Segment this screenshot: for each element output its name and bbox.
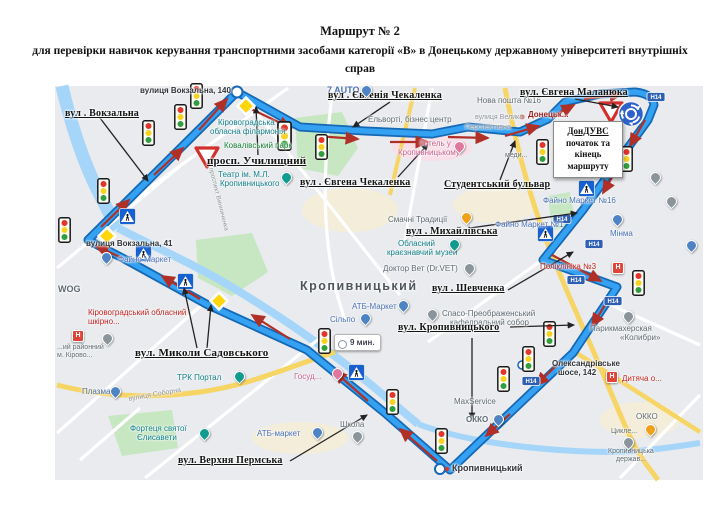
- annotation-kropyvnytskoho: вул. Кропивницького: [398, 322, 499, 333]
- poi-label-silpo: Сільпо: [330, 315, 355, 324]
- poi-label-raionnyi: ...ий районний: [57, 344, 104, 351]
- poi-label-okko-right: ОККО: [636, 412, 658, 421]
- route-box-line: кінець: [556, 149, 620, 161]
- city-label: Кропивницький: [300, 279, 418, 293]
- poi-label-sobor: Спасо-Преображенський: [442, 309, 535, 318]
- poi-label-shkola: Школа: [340, 420, 364, 429]
- road-badge: Н14: [607, 299, 619, 305]
- poi-label-teatr-2: Кропивницького: [220, 179, 279, 188]
- poi-label-faino-16: Файно Маркет №16: [543, 196, 616, 205]
- hospital-icon: H: [612, 262, 624, 274]
- poi-label-trk-portal: ТРК Портал: [177, 373, 221, 382]
- traffic-light-icon: [175, 105, 186, 129]
- poi-label-wog: WOG: [58, 284, 81, 294]
- travel-time-bubble: 9 мин.: [334, 334, 381, 351]
- poi-label-smachni: Смачні Традиції: [388, 215, 447, 224]
- poi-label-plazma: Плазма: [82, 387, 110, 396]
- traffic-light-icon: [537, 140, 548, 164]
- traffic-light-icon: [98, 179, 109, 203]
- poi-label-minma: Мінма: [610, 229, 633, 238]
- poi-label-okko-left: ОККО: [466, 415, 488, 424]
- poi-label-shkirno: Кіровоградський обласний: [88, 308, 186, 317]
- poi-label-shkirno-2: шкірно...: [88, 317, 120, 326]
- poi-label-krop-bottom: Кропивницький: [452, 463, 523, 473]
- annotation-chekalenka-mid: вул . Євгена Чекаленка: [300, 177, 411, 188]
- poi-label-faino-left: Файно Маркет: [118, 255, 171, 264]
- pedestrian-crossing-icon: [120, 209, 136, 225]
- poi-label-muzei: Обласний: [398, 239, 435, 248]
- poi-label-vokzalna-140: вулиця Вокзальна, 140: [140, 86, 231, 95]
- hospital-icon: H: [72, 330, 84, 342]
- clock-icon: [338, 340, 347, 349]
- poi-label-gosud: Госуд...: [294, 372, 321, 381]
- poi-label-hotel: Готель у: [420, 139, 451, 148]
- route-endpoints-box: ДонДУВС початок та кінець маршруту: [553, 121, 623, 178]
- pedestrian-crossing-icon: [178, 274, 194, 290]
- poi-label-muzei-2: краєзнавчий музей: [387, 248, 457, 257]
- hospital-icon: H: [606, 371, 618, 383]
- poi-label-tsykl: Цикле...: [611, 428, 637, 435]
- annotation-shevchenka: вул . Шевченка: [432, 283, 505, 294]
- traffic-light-icon: [143, 121, 154, 145]
- road-badge: Н14: [570, 278, 582, 284]
- route-box-title: ДонДУВС: [556, 126, 620, 138]
- traffic-light-icon: [436, 429, 447, 453]
- road-badge: Н14: [588, 242, 600, 248]
- route-box-line: маршруту: [556, 161, 620, 173]
- route-start-marker: [232, 87, 243, 98]
- poi-label-oleksandrivske-2: шосе, 142: [558, 368, 596, 377]
- poi-label-kropyvnytska: Кропивницька: [608, 448, 654, 455]
- poi-label-atb-mid: АТБ-Маркет: [352, 302, 397, 311]
- annotation-sadovskoho: вул. Миколи Садовського: [135, 347, 269, 359]
- traffic-light-icon: [319, 329, 330, 353]
- annotation-mykhailivska: вул . Михайлівська: [406, 226, 498, 237]
- route-sheet: Маршрут № 2 для перевірки навичок керува…: [0, 0, 720, 509]
- poi-label-elvorti: Ельворті, бізнес центр: [368, 115, 452, 124]
- poi-label-hotel-2: Кропивницькому: [398, 148, 460, 157]
- poi-label-filarmonia: Кіровоградська: [218, 118, 275, 127]
- poi-label-poliklinika: Поліклініка №3: [540, 262, 596, 271]
- poi-label-dytiacha: Дитяча о...: [622, 374, 662, 383]
- poi-label-kropyvnytska-2: держав...: [616, 456, 646, 463]
- annotation-chekalenka-top: вул . Євгенія Чекаленка: [328, 90, 442, 101]
- poi-label-fortecia: Фортеця святої: [130, 424, 187, 433]
- poi-label-faino-1: Файно Маркет №1: [495, 220, 563, 229]
- annotation-vokzalna: вул . Вокзальна: [65, 108, 139, 119]
- poi-label-vokzalna-41: вулиця Вокзальна, 41: [86, 239, 172, 248]
- traffic-light-icon: [59, 218, 70, 242]
- traffic-light-icon: [387, 390, 398, 414]
- route-bottom-dot: [445, 467, 449, 471]
- route-box-line: початок та: [556, 138, 620, 150]
- poi-label-donetsk: Донецьк...: [528, 110, 568, 119]
- travel-time-text: 9 мин.: [350, 338, 375, 347]
- street-label-perspektyvna: вулиця Велика: [475, 114, 523, 121]
- pedestrian-crossing-icon: [349, 365, 365, 381]
- poi-label-filarmonia-2: обласна філармонія: [210, 127, 285, 136]
- poi-label-raionnyi-2: м. Кірово...: [57, 352, 93, 359]
- poi-label-doktor-vet: Доктор Вет (Dr.VET): [383, 264, 458, 273]
- pedestrian-crossing-icon: [579, 181, 595, 197]
- poi-label-fortecia-2: Єлисавети: [137, 433, 177, 442]
- traffic-light-icon: [498, 367, 509, 391]
- road-badge: Н14: [650, 95, 662, 101]
- annotation-verkhnia-permska: вул. Верхня Пермська: [178, 455, 283, 466]
- poi-label-atb-bottom: АТБ-маркет: [257, 429, 300, 438]
- route-bottom-marker: [435, 464, 445, 474]
- poi-label-kolibri: Парикмахерская: [590, 324, 652, 333]
- poi-label-kolibri-2: «Колибри»: [620, 333, 660, 342]
- street-label-perspektyvna-2: Перспективна: [465, 124, 511, 131]
- traffic-light-icon: [633, 271, 644, 295]
- road-badge: Н14: [525, 379, 537, 385]
- annotation-studentskyi: Студентський бульвар: [444, 179, 550, 190]
- poi-label-teatr: Театр ім. М.Л.: [218, 170, 270, 179]
- poi-label-kovalivskyi-park: Ковалівський парк: [224, 141, 292, 150]
- annotation-uchylyshchnyi: просп. Училищний: [207, 155, 306, 167]
- traffic-light-icon: [316, 135, 327, 159]
- traffic-light-icon: [523, 347, 534, 371]
- annotation-malaniuka: вул. Євгена Маланюка: [520, 87, 628, 98]
- poi-label-maxservice: MaxService: [454, 397, 496, 406]
- poi-label-oleksandrivske: Олександрівське: [552, 359, 620, 368]
- poi-label-medy: меди...: [505, 152, 527, 159]
